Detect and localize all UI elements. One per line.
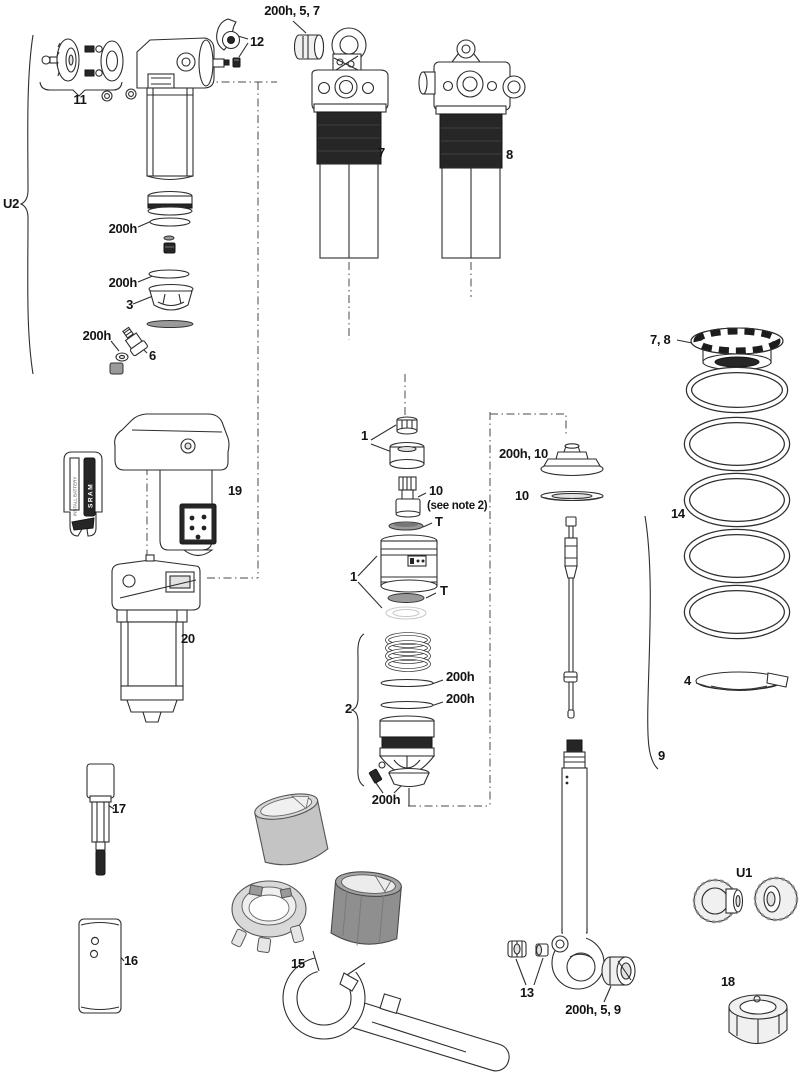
callout-200h-a: 200h <box>90 222 137 236</box>
callout-7: 7 <box>378 146 385 160</box>
damper-internals-column <box>381 417 437 619</box>
battery-caution-text: INSTALL BATTERY <box>73 477 78 516</box>
callout-1b: 1 <box>350 570 357 584</box>
u1-mount-hardware <box>694 878 797 922</box>
callout-see-note-2: (see note 2) <box>427 499 487 513</box>
spring-seat-4 <box>696 672 788 691</box>
callout-19: 19 <box>228 484 242 498</box>
callout-13: 13 <box>520 986 534 1000</box>
callout-12: 12 <box>250 35 264 49</box>
knob-kit-parts <box>42 39 136 101</box>
remote-control-19 <box>115 414 229 556</box>
topout-parts <box>541 444 603 501</box>
diagram-art: INSTALL BATTERY SRAM <box>0 0 800 1081</box>
callout-t-upper: T <box>435 515 443 529</box>
damper-shaft <box>564 517 577 718</box>
callout-u1: U1 <box>736 866 752 880</box>
callout-10a: 10 <box>429 484 443 498</box>
eyelet-bushing-top <box>295 35 324 59</box>
callout-200h-e: 200h <box>446 692 474 706</box>
callout-10b: 10 <box>515 489 529 503</box>
callout-200h-b: 200h <box>90 276 137 290</box>
tool-tube-dark <box>330 869 402 948</box>
callout-4: 4 <box>684 674 691 688</box>
mount-hardware-13 <box>508 941 548 957</box>
callout-200h-10: 200h, 10 <box>499 447 548 461</box>
tool-block-16 <box>79 919 121 1013</box>
preload-collar <box>691 328 783 370</box>
battery-clip: INSTALL BATTERY SRAM <box>64 452 102 536</box>
callout-6: 6 <box>149 349 156 363</box>
callout-9: 9 <box>658 749 665 763</box>
callout-200h-5-7: 200h, 5, 7 <box>264 4 320 18</box>
battery-brand-text: SRAM <box>88 483 95 508</box>
callout-200h-f: 200h <box>372 793 400 807</box>
air-valve-6 <box>119 325 148 357</box>
callout-1a: 1 <box>361 429 368 443</box>
callout-11: 11 <box>73 93 86 107</box>
callout-2: 2 <box>345 702 352 716</box>
exploded-diagram: INSTALL BATTERY SRAM <box>0 0 800 1081</box>
air-shock-u2 <box>137 38 229 180</box>
callout-20: 20 <box>181 632 195 646</box>
callout-17: 17 <box>112 802 126 816</box>
tool-ring <box>231 881 306 953</box>
damper-body <box>552 740 604 989</box>
shock-7 <box>312 28 388 258</box>
coil-spring-14 <box>687 370 787 636</box>
callout-16: 16 <box>124 954 138 968</box>
callout-3: 3 <box>90 298 133 312</box>
callout-t-lower: T <box>440 584 448 598</box>
mount-bushing-18 <box>729 995 787 1044</box>
callout-7-8: 7, 8 <box>650 333 670 347</box>
callout-15: 15 <box>291 957 305 971</box>
eyelet-bushing-bottom <box>602 957 635 985</box>
callout-200h-d: 200h <box>446 670 474 684</box>
callout-u2: U2 <box>3 197 19 211</box>
callout-200h-c: 200h <box>64 329 111 343</box>
callout-18: 18 <box>721 975 735 989</box>
spanner-wrench <box>283 948 512 1074</box>
rebound-assembly-2 <box>369 634 434 787</box>
callout-200h-5-9: 200h, 5, 9 <box>565 1003 621 1017</box>
callout-14: 14 <box>671 507 685 521</box>
callout-8: 8 <box>506 148 513 162</box>
tool-rod-17 <box>87 764 114 875</box>
tool-tube-light <box>253 789 330 870</box>
